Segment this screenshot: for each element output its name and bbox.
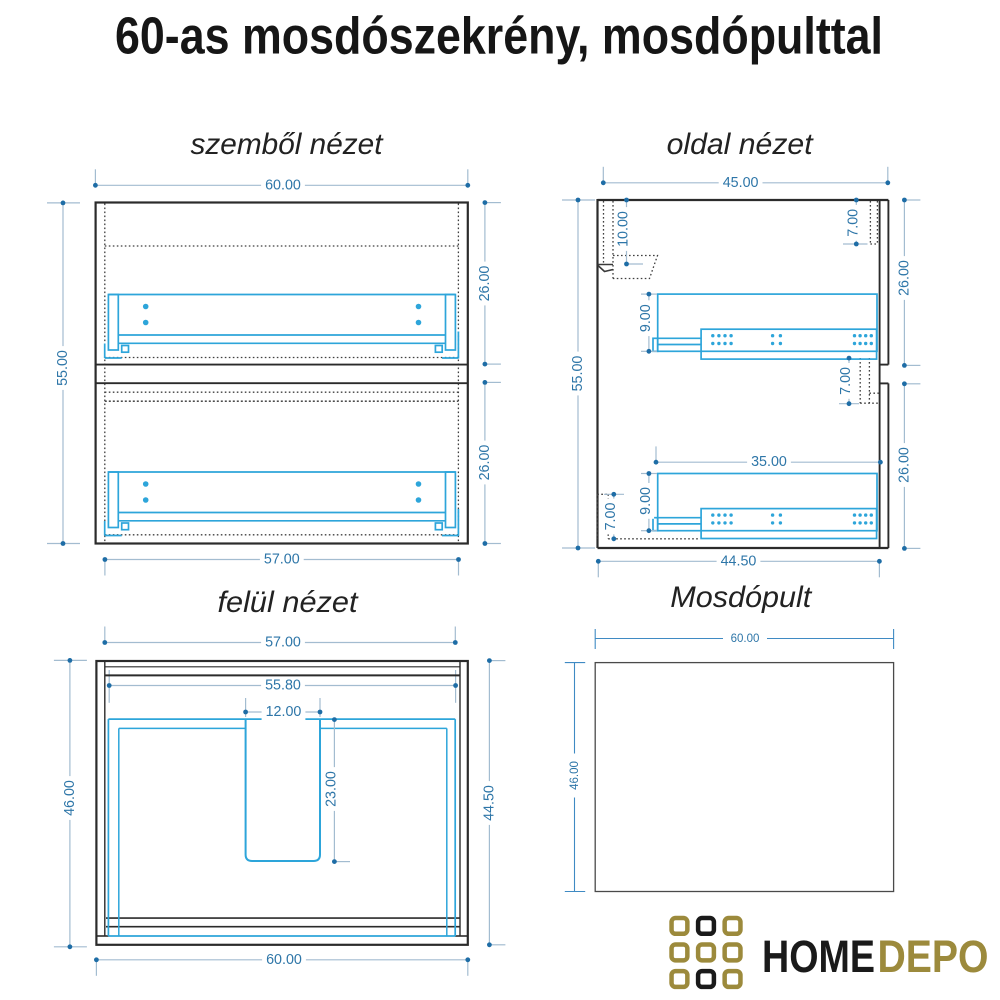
svg-text:57.00: 57.00 [264,552,300,568]
svg-text:7.00: 7.00 [845,209,861,237]
svg-text:46.00: 46.00 [62,780,78,816]
svg-text:12.00: 12.00 [266,704,302,720]
svg-text:10.00: 10.00 [616,211,632,247]
svg-text:35.00: 35.00 [751,454,787,470]
svg-text:7.00: 7.00 [838,367,854,395]
svg-text:44.50: 44.50 [721,553,757,569]
svg-text:57.00: 57.00 [265,635,301,651]
svg-text:9.00: 9.00 [638,487,654,515]
svg-text:60.00: 60.00 [266,952,302,968]
svg-text:60.00: 60.00 [731,633,760,645]
svg-text:46.00: 46.00 [569,761,581,790]
svg-text:Mosdópult: Mosdópult [670,581,813,614]
svg-text:45.00: 45.00 [723,175,759,191]
svg-text:60-as mosdószekrény, mosdópult: 60-as mosdószekrény, mosdópulttal [115,8,883,66]
svg-text:szemből nézet: szemből nézet [191,128,385,161]
svg-text:felül nézet: felül nézet [218,586,360,619]
svg-text:oldal nézet: oldal nézet [667,128,815,161]
svg-text:7.00: 7.00 [603,503,619,531]
svg-text:HOME: HOME [762,931,875,982]
svg-text:55.00: 55.00 [55,350,71,386]
svg-text:23.00: 23.00 [323,771,339,807]
svg-text:26.00: 26.00 [477,445,493,481]
svg-text:DEPO: DEPO [878,931,989,982]
svg-text:26.00: 26.00 [477,266,493,302]
svg-text:26.00: 26.00 [896,447,912,483]
svg-text:60.00: 60.00 [265,177,301,193]
svg-text:44.50: 44.50 [481,785,497,821]
svg-text:55.80: 55.80 [265,678,301,694]
svg-text:9.00: 9.00 [638,304,654,332]
svg-text:26.00: 26.00 [896,260,912,296]
svg-text:55.00: 55.00 [570,356,586,392]
